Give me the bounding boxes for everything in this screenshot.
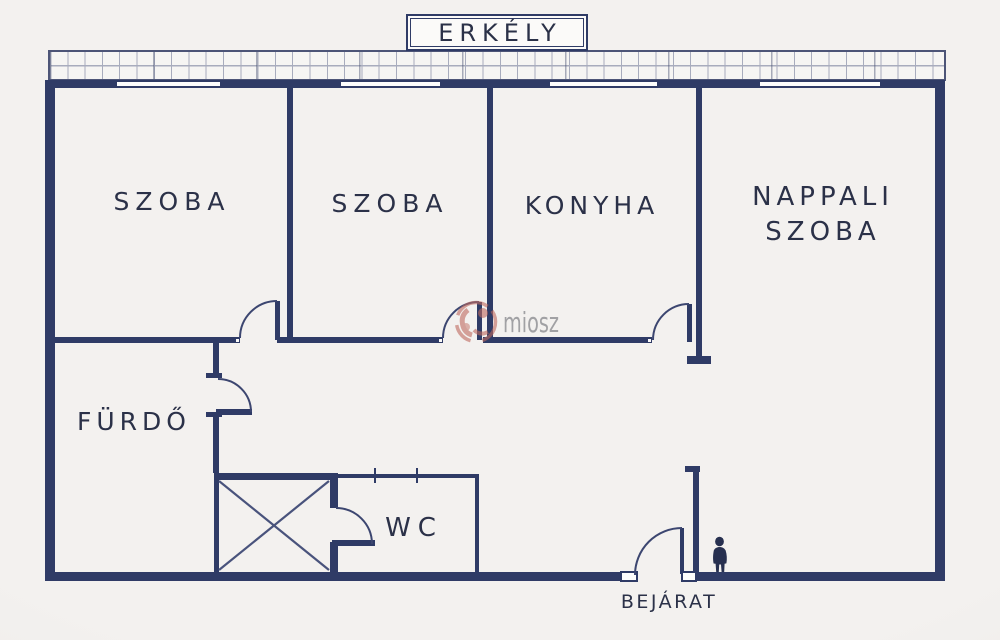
door-panel-entrance bbox=[680, 528, 684, 574]
door-arc-room2 bbox=[443, 302, 479, 338]
door-panel-room1 bbox=[275, 301, 280, 340]
room-label-szoba-1: SZOBA bbox=[114, 187, 231, 216]
window bbox=[117, 80, 220, 88]
shaft-diagonal bbox=[219, 481, 329, 570]
room-label-nappali-line1: NAPPALI bbox=[752, 180, 894, 215]
door-panel-kitchen bbox=[687, 304, 692, 342]
balcony-label-box: ERKÉLY bbox=[406, 14, 588, 51]
floor-plan: ERKÉLY SZOB bbox=[0, 0, 1000, 640]
door-panel-wc bbox=[332, 540, 375, 546]
wall-bathroom bbox=[213, 412, 219, 473]
wall-left bbox=[45, 80, 55, 581]
wall-wc bbox=[475, 478, 479, 572]
wall-hall bbox=[277, 337, 443, 343]
wall-wc bbox=[338, 474, 479, 478]
entrance-threshold bbox=[681, 571, 697, 582]
room-label-wc: WC bbox=[385, 513, 443, 543]
wall-room2-kitchen bbox=[487, 88, 493, 340]
shaft-x-icon bbox=[219, 481, 329, 570]
wall-kitchen-living bbox=[696, 88, 702, 356]
door-arc-room1 bbox=[240, 301, 277, 338]
wall-end-cap bbox=[687, 356, 711, 364]
balcony-tiles bbox=[48, 50, 946, 81]
door-panel-room2 bbox=[477, 302, 482, 340]
wall-bathroom bbox=[213, 343, 219, 377]
wall-right bbox=[935, 80, 945, 581]
door-jamb bbox=[438, 338, 443, 343]
door-arc-kitchen bbox=[653, 304, 689, 340]
wall-room1-room2 bbox=[287, 88, 293, 340]
wall-segment bbox=[45, 80, 117, 88]
wall-tick bbox=[416, 468, 418, 483]
window bbox=[341, 80, 440, 88]
person-head bbox=[715, 537, 724, 547]
entrance-threshold bbox=[620, 571, 638, 582]
entrance-label: BEJÁRAT bbox=[621, 591, 717, 613]
wall-tick bbox=[374, 468, 376, 483]
door-arc-wc bbox=[336, 508, 372, 544]
wall-segment bbox=[440, 80, 550, 88]
room-label-nappali-line2: SZOBA bbox=[752, 215, 894, 250]
wall-shaft bbox=[330, 542, 338, 572]
window bbox=[550, 80, 657, 88]
shaft-diagonal bbox=[219, 481, 329, 570]
wall-segment bbox=[657, 80, 760, 88]
watermark-dot bbox=[462, 323, 470, 331]
watermark-swirl bbox=[462, 310, 472, 335]
wall-shaft bbox=[330, 480, 338, 508]
wall-bottom bbox=[45, 572, 637, 581]
plan-overlay: miosz bbox=[0, 0, 1000, 640]
window bbox=[760, 80, 880, 88]
room-label-szoba-2: SZOBA bbox=[332, 189, 449, 218]
wall-hall bbox=[50, 337, 240, 343]
room-label-furdo: FÜRDŐ bbox=[77, 407, 191, 436]
wall-hall bbox=[483, 337, 652, 343]
door-arc-entrance bbox=[635, 528, 682, 575]
watermark-text: miosz bbox=[503, 306, 559, 339]
wall-bottom bbox=[682, 572, 945, 581]
person-body bbox=[713, 547, 727, 572]
room-label-konyha: KONYHA bbox=[525, 191, 660, 220]
wall-hall-living bbox=[693, 472, 699, 572]
wall-segment bbox=[220, 80, 341, 88]
door-arc-bathroom bbox=[218, 379, 251, 412]
wall-end-cap bbox=[685, 466, 700, 472]
door-jamb bbox=[235, 338, 240, 343]
balcony-label: ERKÉLY bbox=[410, 18, 584, 47]
door-jamb bbox=[206, 373, 222, 378]
room-label-nappali-szoba: NAPPALI SZOBA bbox=[752, 180, 894, 250]
wall-shaft bbox=[214, 473, 219, 572]
door-jamb bbox=[647, 338, 652, 343]
person-icon bbox=[713, 537, 727, 572]
wall-shaft bbox=[214, 473, 338, 480]
door-panel-bathroom bbox=[216, 409, 252, 415]
